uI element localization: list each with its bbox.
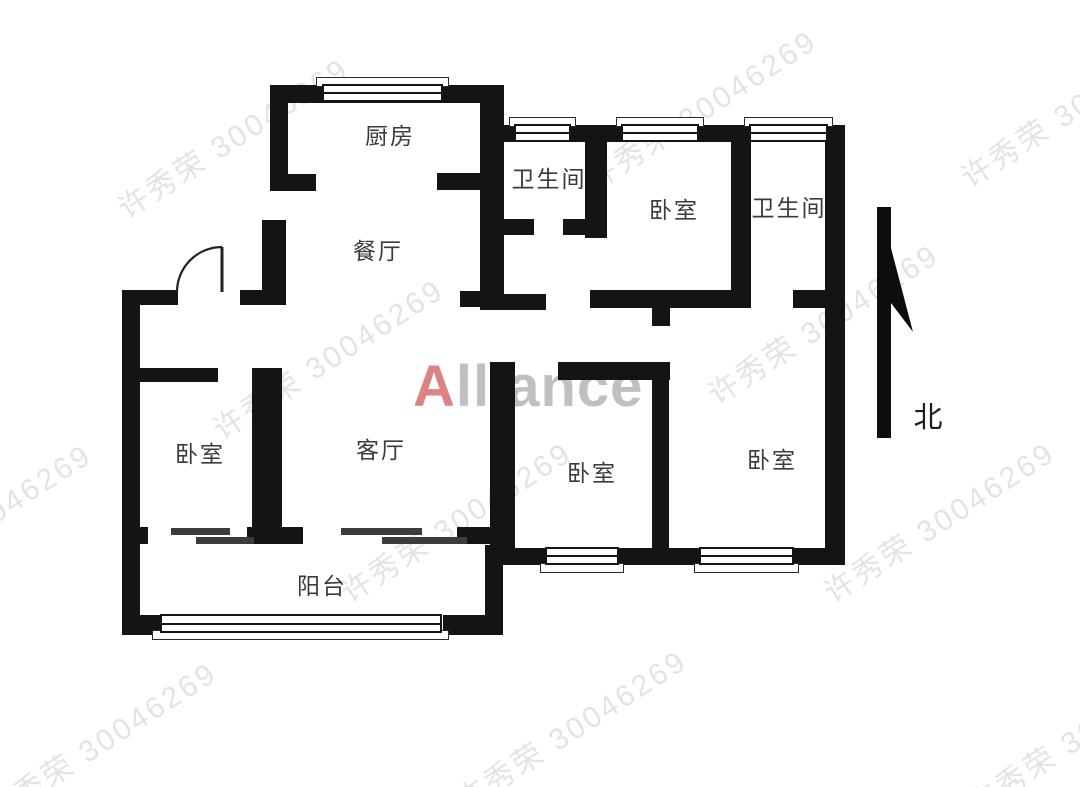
room-label-bedroom-middle: 卧室 bbox=[567, 454, 617, 488]
floorplan-stage: 许秀荣 30046269 许秀荣 30046269 许秀荣 30046269 许… bbox=[0, 0, 1080, 787]
room-label-balcony: 阳台 bbox=[297, 567, 347, 601]
room-label-dining-room: 餐厅 bbox=[353, 232, 403, 266]
room-label-bedroom-east: 卧室 bbox=[747, 441, 797, 475]
room-label-living-room: 客厅 bbox=[356, 431, 406, 465]
room-label-kitchen: 厨房 bbox=[365, 117, 415, 151]
room-label-bedroom-west: 卧室 bbox=[175, 435, 225, 469]
north-label: 北 bbox=[913, 394, 942, 436]
entrance-door-symbol bbox=[177, 247, 222, 292]
north-arrow-icon bbox=[877, 206, 913, 438]
room-label-bedroom-north: 卧室 bbox=[649, 191, 699, 225]
room-label-bathroom-east: 卫生间 bbox=[752, 189, 827, 223]
room-label-bathroom-north: 卫生间 bbox=[512, 160, 587, 194]
